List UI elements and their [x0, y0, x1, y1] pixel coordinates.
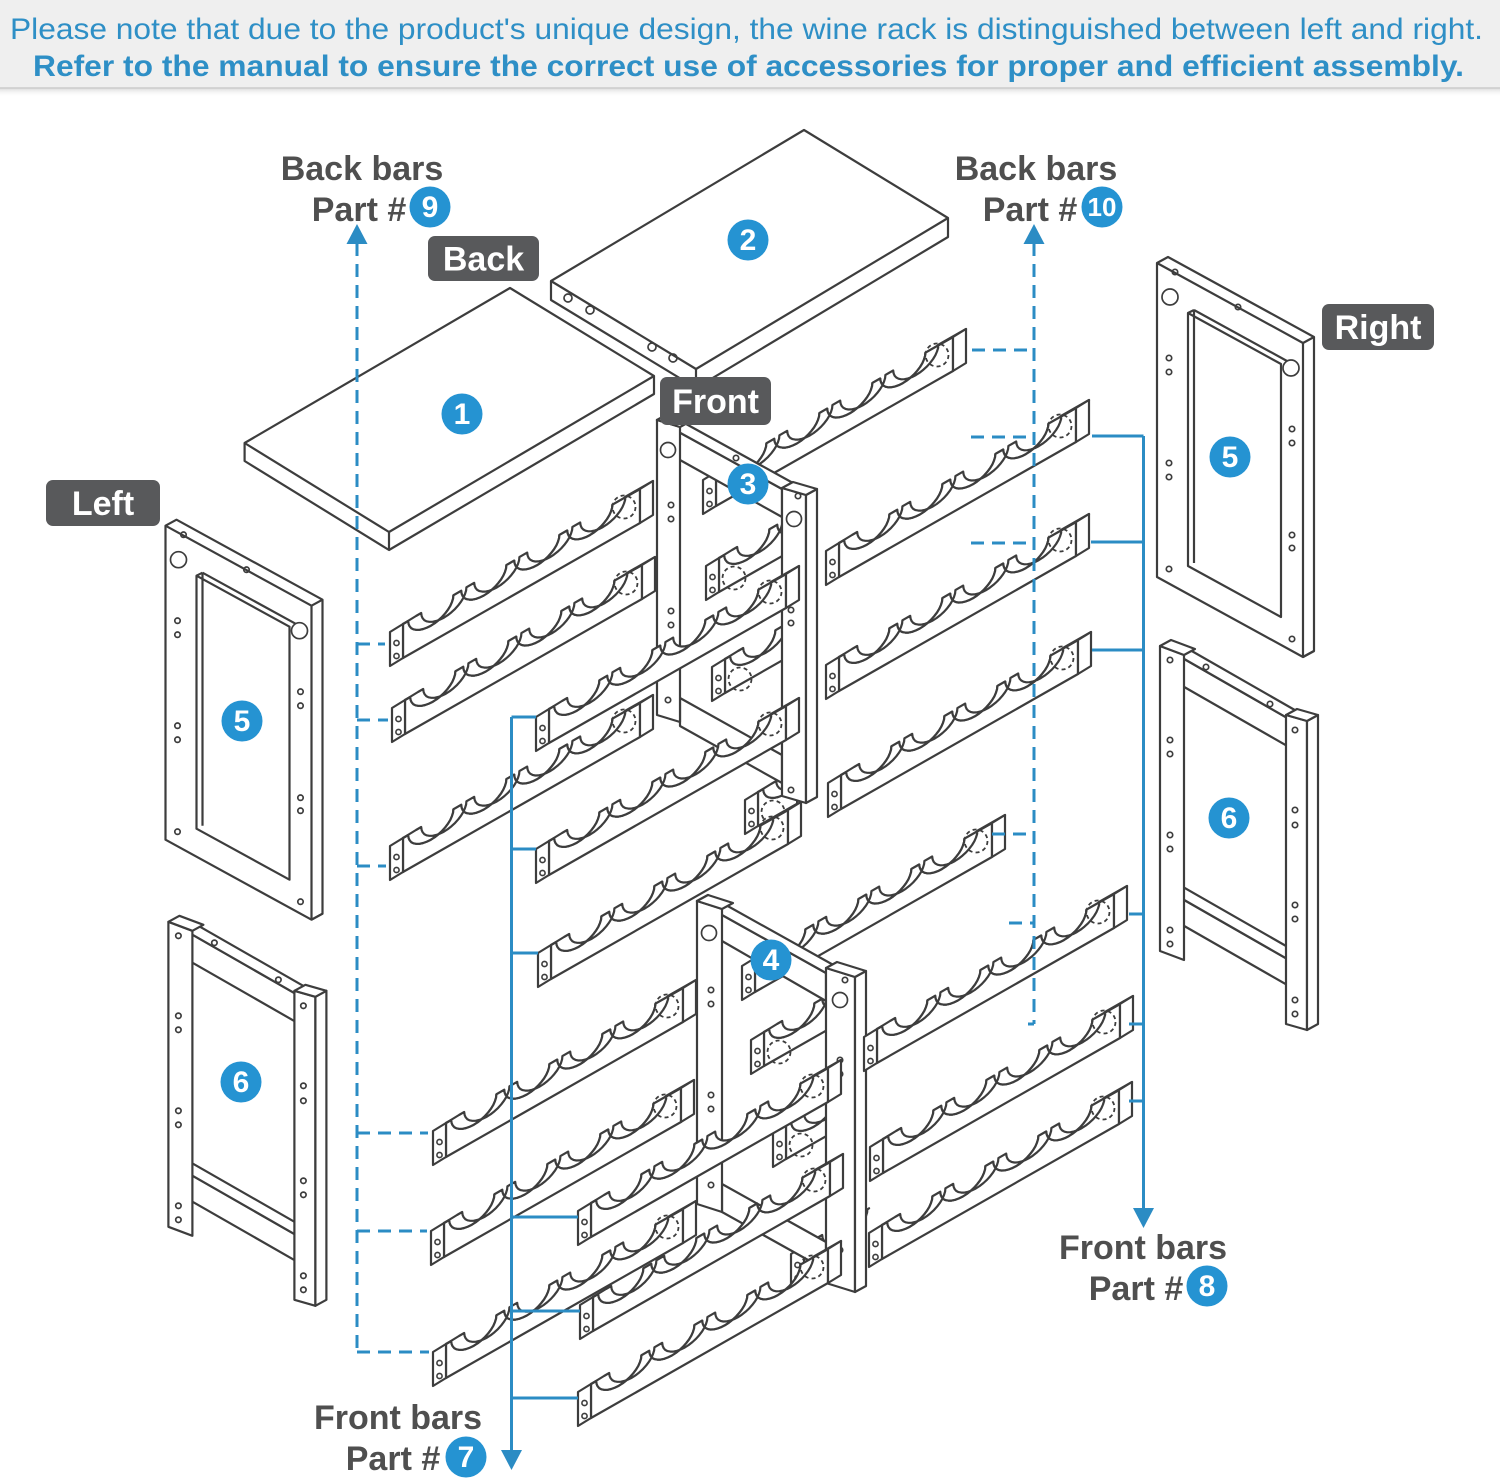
- svg-text:Front: Front: [672, 383, 759, 421]
- svg-text:Right: Right: [1335, 309, 1422, 347]
- svg-text:Back: Back: [443, 241, 524, 279]
- svg-text:6: 6: [233, 1066, 250, 1099]
- svg-text:3: 3: [740, 468, 757, 501]
- svg-text:Back bars: Back bars: [955, 150, 1118, 188]
- svg-text:Please note that due to the pr: Please note that due to the product's un…: [10, 13, 1483, 46]
- svg-text:1: 1: [454, 398, 471, 431]
- svg-text:8: 8: [1199, 1270, 1216, 1303]
- svg-text:7: 7: [458, 1441, 475, 1474]
- svg-text:Part #: Part #: [1089, 1270, 1184, 1308]
- svg-text:2: 2: [740, 224, 757, 257]
- svg-text:Back bars: Back bars: [281, 150, 444, 188]
- svg-text:Refer to the manual to ensure: Refer to the manual to ensure the correc…: [33, 50, 1464, 83]
- svg-text:Part #: Part #: [983, 191, 1078, 229]
- svg-text:5: 5: [1222, 441, 1239, 474]
- svg-text:Left: Left: [72, 485, 134, 523]
- svg-text:4: 4: [763, 944, 780, 977]
- svg-text:10: 10: [1088, 192, 1117, 222]
- svg-text:Front bars: Front bars: [1059, 1229, 1227, 1267]
- svg-text:Part #: Part #: [346, 1440, 441, 1478]
- svg-text:5: 5: [234, 705, 251, 738]
- svg-text:9: 9: [422, 191, 439, 224]
- svg-text:6: 6: [1221, 802, 1238, 835]
- svg-text:Part #: Part #: [312, 191, 407, 229]
- svg-text:Front bars: Front bars: [314, 1399, 482, 1437]
